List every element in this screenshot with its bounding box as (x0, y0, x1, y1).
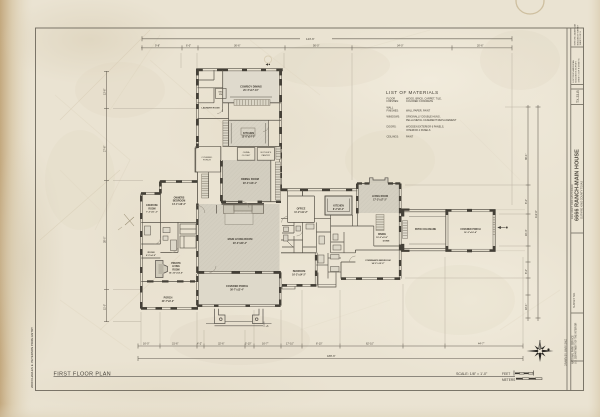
svg-text:DINING ROOM: DINING ROOM (241, 177, 259, 181)
svg-text:PATIO COLONADE: PATIO COLONADE (415, 228, 437, 231)
svg-text:FOREMAN'S BEDROOM: FOREMAN'S BEDROOM (365, 259, 390, 262)
svg-text:WINDOWS:: WINDOWS: (387, 116, 401, 119)
svg-text:20'-3"x30'-4": 20'-3"x30'-4" (233, 242, 247, 245)
svg-text:GUTHRIE KING COUNTY TEXAS: GUTHRIE KING COUNTY TEXAS (581, 181, 584, 219)
svg-text:ROOM: ROOM (148, 208, 155, 210)
svg-text:143'-6": 143'-6" (306, 37, 315, 41)
svg-text:EXERCISE: EXERCISE (146, 205, 158, 207)
svg-text:9'-8": 9'-8" (155, 44, 160, 47)
svg-text:BUTLER'S: BUTLER'S (261, 152, 272, 154)
svg-text:PORCH: PORCH (203, 160, 211, 162)
svg-text:NATIONAL PARK SERVICE: NATIONAL PARK SERVICE (571, 335, 574, 364)
svg-text:LAUNDRY ROOM: LAUNDRY ROOM (202, 106, 220, 109)
svg-text:56'-0": 56'-0" (313, 44, 319, 47)
svg-text:11'-2"x11'-2": 11'-2"x11'-2" (294, 212, 308, 214)
svg-text:KITCHEN: KITCHEN (243, 132, 254, 135)
svg-text:FEET: FEET (502, 372, 510, 376)
svg-text:27'-6": 27'-6" (104, 146, 107, 152)
svg-text:36'-1": 36'-1" (525, 154, 528, 160)
svg-text:COVERED: COVERED (201, 157, 212, 159)
svg-text:PELLA METAL CASEMENT REPLACEME: PELLA METAL CASEMENT REPLACEMENT (406, 119, 457, 122)
svg-text:BEDROOM: BEDROOM (173, 200, 185, 203)
svg-text:17'-3"x17'-2": 17'-3"x17'-2" (373, 199, 387, 201)
svg-text:17'-10": 17'-10" (286, 343, 294, 346)
svg-text:16'-4": 16'-4" (525, 230, 528, 236)
svg-text:18'-1": 18'-1" (525, 304, 528, 310)
svg-text:20'-7"x9'-2": 20'-7"x9'-2" (162, 301, 174, 303)
svg-text:LIST OF MATERIALS: LIST OF MATERIALS (386, 90, 439, 95)
svg-text:1102 DASH FOR CASH ROAD: 1102 DASH FOR CASH ROAD (571, 184, 574, 219)
svg-text:8'-2"x8'-2": 8'-2"x8'-2" (333, 209, 344, 211)
svg-text:DRAWN BY: MARY SAIZ: DRAWN BY: MARY SAIZ (564, 339, 567, 366)
svg-text:INTERIOR 4 PANELS: INTERIOR 4 PANELS (406, 129, 431, 132)
svg-text:36'-6": 36'-6" (234, 44, 240, 47)
svg-text:LIVING: LIVING (172, 266, 180, 268)
svg-text:RM.: RM. (219, 94, 223, 96)
svg-text:20'-4"x17'-10": 20'-4"x17'-10" (243, 89, 259, 92)
svg-text:ROOM: ROOM (172, 269, 179, 271)
svg-text:31'-6": 31'-6" (172, 343, 178, 346)
svg-text:COVERED PORCH: COVERED PORCH (226, 285, 248, 288)
svg-text:16'-0": 16'-0" (143, 343, 149, 346)
svg-text:CLOSET: CLOSET (242, 155, 251, 157)
svg-text:HISTORIC AMERICAN: HISTORIC AMERICAN (574, 23, 577, 45)
svg-text:14'-1"x16'-3": 14'-1"x16'-3" (172, 203, 186, 206)
svg-text:CHINA: CHINA (243, 151, 250, 154)
svg-text:36'-7"x12'-4": 36'-7"x12'-4" (230, 289, 244, 292)
svg-text:6'-0": 6'-0" (186, 44, 191, 47)
svg-text:38'-0": 38'-0" (104, 237, 107, 243)
svg-text:DOORS:: DOORS: (387, 126, 397, 129)
svg-text:10'-0"x9'-8": 10'-0"x9'-8" (376, 237, 388, 239)
svg-text:MAIN LIVING ROOM: MAIN LIVING ROOM (228, 237, 253, 241)
svg-text:13'-6": 13'-6" (104, 89, 107, 95)
svg-text:8'-10": 8'-10" (316, 343, 322, 346)
svg-text:5'-10": 5'-10" (245, 343, 251, 346)
svg-text:COWBOY DINING: COWBOY DINING (240, 85, 262, 89)
svg-text:44'-7": 44'-7" (478, 343, 484, 346)
svg-text:16'-2"x16'-4": 16'-2"x16'-4" (464, 231, 477, 234)
svg-text:16'-10"x14'-0": 16'-10"x14'-0" (169, 272, 183, 275)
svg-text:METERS: METERS (502, 378, 515, 382)
svg-text:LIVING ROOM: LIVING ROOM (372, 195, 388, 198)
svg-text:34'-0": 34'-0" (397, 44, 403, 47)
svg-text:CEILINGS:: CEILINGS: (387, 135, 400, 138)
svg-text:SURVEY NO.: SURVEY NO. (573, 292, 576, 308)
svg-text:SHEET 3 OF 8: SHEET 3 OF 8 (580, 31, 582, 46)
svg-text:62'-10": 62'-10" (366, 343, 374, 346)
svg-text:7'-3"x11'-3": 7'-3"x11'-3" (146, 212, 158, 214)
svg-text:ROOM: ROOM (148, 252, 155, 254)
svg-text:14'-2"x13'-2": 14'-2"x13'-2" (371, 262, 384, 265)
svg-text:PRIVATE: PRIVATE (171, 262, 181, 265)
svg-text:11'-0": 11'-0" (104, 304, 107, 310)
svg-text:PANTRY: PANTRY (262, 154, 271, 157)
svg-text:188'-6": 188'-6" (327, 354, 336, 358)
svg-text:SHEET 3 OF 8 SHEETS: SHEET 3 OF 8 SHEETS (578, 58, 580, 82)
svg-text:6'-3"x6'-0": 6'-3"x6'-0" (146, 255, 156, 257)
svg-text:WALL PAPER, PAINT: WALL PAPER, PAINT (406, 109, 431, 112)
svg-text:BEDROOM: BEDROOM (293, 270, 305, 273)
svg-text:2000 CHARLES E. PETERSON PRIZE: 2000 CHARLES E. PETERSON PRIZE ENTRY (30, 327, 34, 388)
svg-text:PAINT: PAINT (406, 135, 414, 138)
svg-text:DINING: DINING (378, 234, 386, 236)
svg-text:COLORED CONCRETE: COLORED CONCRETE (406, 100, 433, 103)
svg-text:20'-4"x16'-1": 20'-4"x16'-1" (243, 182, 257, 185)
svg-text:112'-6": 112'-6" (534, 210, 538, 218)
svg-text:16'-7": 16'-7" (262, 343, 268, 346)
svg-text:DOWN: DOWN (383, 240, 390, 242)
svg-text:HISTORIC AMERICAN: HISTORIC AMERICAN (572, 60, 575, 83)
svg-text:BUILDINGS SURVEY: BUILDINGS SURVEY (576, 61, 578, 83)
svg-text:OFFICE: OFFICE (297, 207, 306, 210)
svg-text:FINISHES:: FINISHES: (387, 109, 400, 112)
svg-text:4'-2": 4'-2" (197, 343, 202, 346)
svg-text:8'-0": 8'-0" (525, 199, 528, 204)
svg-text:U.S. DEPARTMENT OF THE INTERIO: U.S. DEPARTMENT OF THE INTERIOR (575, 322, 578, 364)
svg-text:8'-0": 8'-0" (525, 269, 528, 274)
svg-text:BUILDINGS SURVEY: BUILDINGS SURVEY (577, 24, 579, 45)
svg-text:KITCHEN: KITCHEN (333, 204, 344, 207)
svg-text:TX-33-B: TX-33-B (576, 90, 580, 103)
svg-text:PORCH: PORCH (164, 297, 173, 300)
svg-text:COVERED PORCH: COVERED PORCH (460, 229, 481, 231)
svg-text:15'-8"x14'-0": 15'-8"x14'-0" (242, 135, 256, 138)
svg-text:FINISHES:: FINISHES: (387, 100, 400, 103)
svg-text:32'-6": 32'-6" (218, 343, 224, 346)
svg-text:16'-2"x14'-2": 16'-2"x14'-2" (292, 273, 306, 276)
svg-text:20'-6": 20'-6" (477, 44, 483, 47)
svg-text:SCALE: 1/8" = 1'-0": SCALE: 1/8" = 1'-0" (456, 372, 488, 376)
